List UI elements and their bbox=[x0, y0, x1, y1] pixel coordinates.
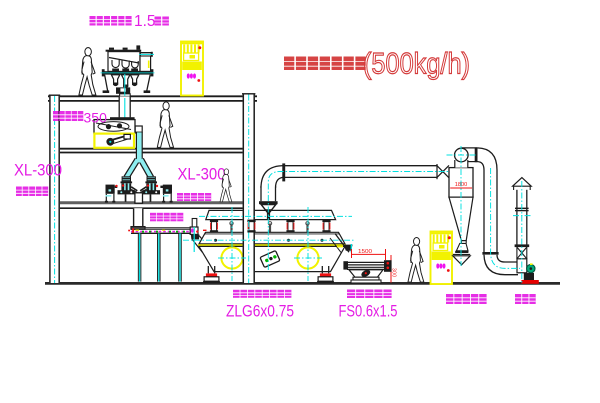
svg-text:FS0.6x1.5: FS0.6x1.5 bbox=[339, 302, 398, 321]
svg-text:350: 350 bbox=[84, 110, 108, 126]
svg-text:1500: 1500 bbox=[358, 249, 372, 255]
svg-text:1.5: 1.5 bbox=[134, 13, 156, 30]
svg-text:ZLG6x0.75: ZLG6x0.75 bbox=[226, 302, 294, 321]
svg-text:XL-300: XL-300 bbox=[178, 165, 226, 184]
svg-text:XL-300: XL-300 bbox=[14, 161, 62, 180]
svg-text:(500kg/h): (500kg/h) bbox=[363, 48, 470, 81]
